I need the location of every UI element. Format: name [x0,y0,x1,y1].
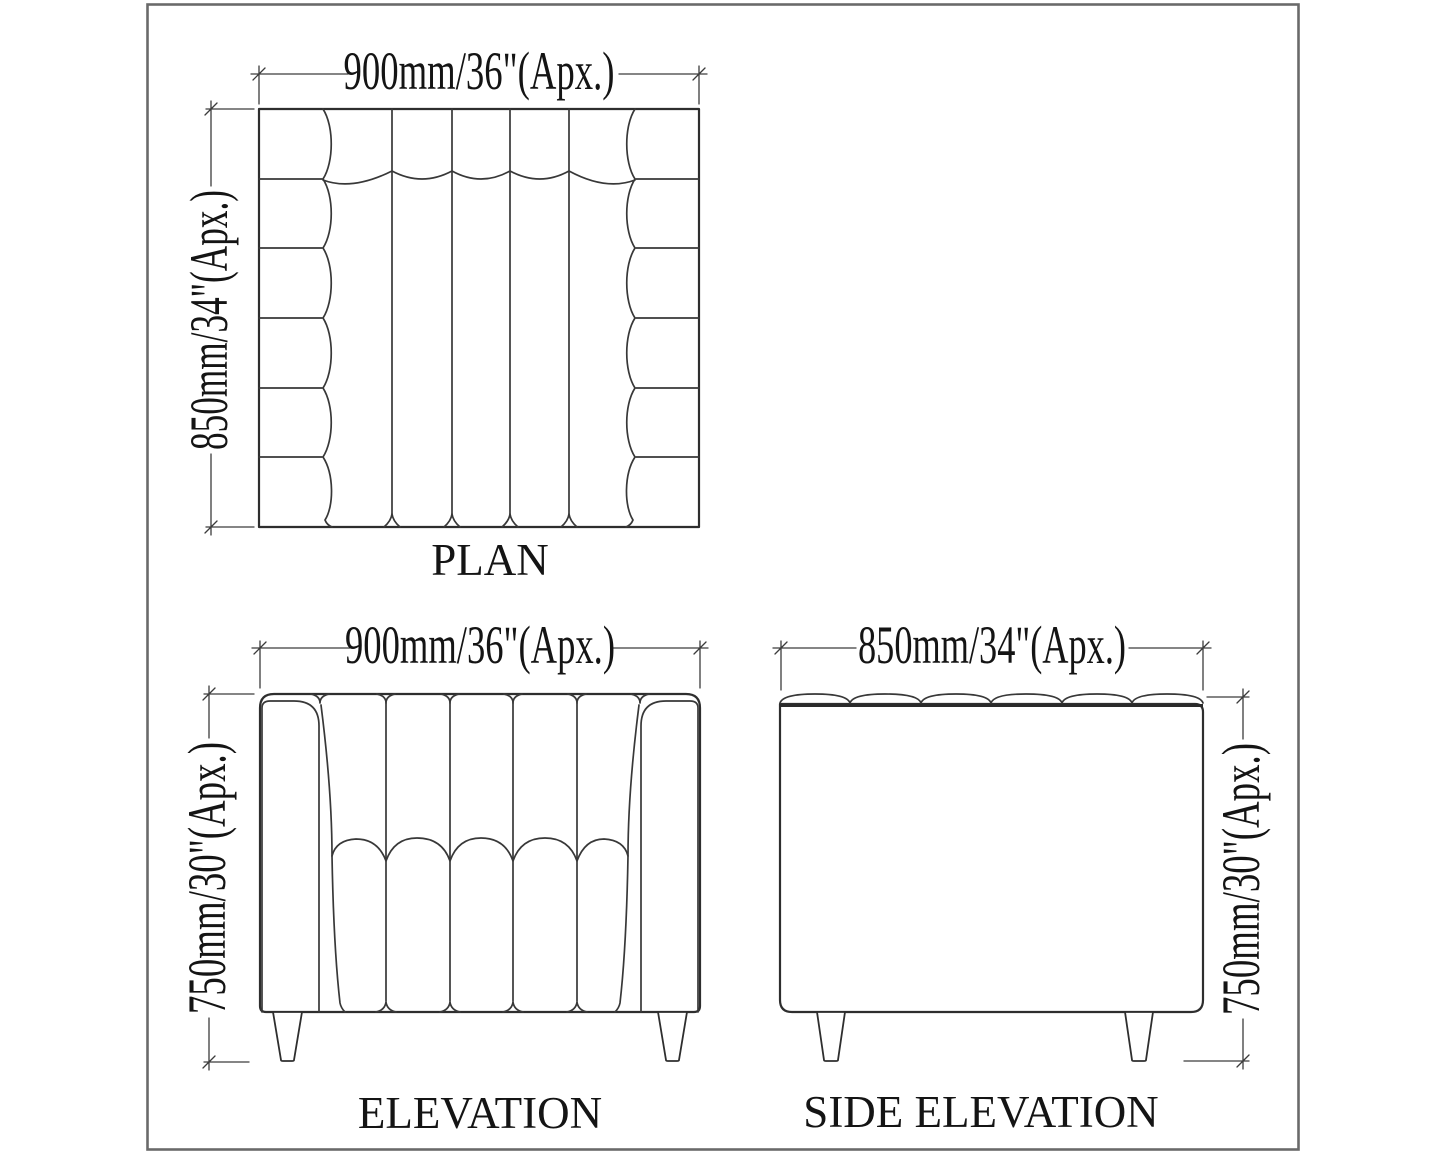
elevation-bottom-notches [376,1002,587,1012]
side-elevation-left-leg [817,1012,845,1061]
side-elevation-view: 850mm/34"(Apx.) 750mm/30"(Apx.) SIDE ELE… [773,615,1271,1137]
plan-outline [259,109,699,527]
sheet-border [148,5,1299,1150]
side-elevation-right-leg [1125,1012,1153,1061]
plan-left-arm-divisions [259,179,322,457]
elevation-view-label: ELEVATION [358,1088,602,1138]
plan-left-arm-wavy-edge [323,109,332,527]
plan-channel-seams [392,109,569,514]
side-elevation-right-dimension-text: 750mm/30"(Apx.) [1211,743,1271,1015]
elevation-channel-seams [386,703,577,1001]
elevation-left-dimension-text: 750mm/30"(Apx.) [177,742,237,1014]
cad-drawing: 900mm/36"(Apx.) 850mm/34"(Apx.) PLAN [0,0,1445,1156]
side-elevation-outline [780,704,1203,1012]
side-elevation-top-scallops [780,694,1203,703]
elevation-right-arm-panel [641,701,698,1012]
elevation-top-dimension-text: 900mm/36"(Apx.) [345,615,615,675]
elevation-view: 900mm/36"(Apx.) 750mm/30"(Apx.) ELEVATIO… [177,615,708,1138]
plan-left-dimension-text: 850mm/34"(Apx.) [179,190,239,450]
plan-view-label: PLAN [431,535,549,585]
elevation-seat-arches [332,838,628,861]
side-elevation-view-label: SIDE ELEVATION [803,1087,1158,1137]
elevation-left-arm-panel [262,701,319,1012]
plan-right-arm-divisions [636,179,699,457]
elevation-left-leg [273,1012,302,1061]
elevation-left-sweep-curve [321,705,345,1012]
plan-view: 900mm/36"(Apx.) 850mm/34"(Apx.) PLAN [179,41,707,585]
elevation-top-notches [311,694,649,703]
plan-top-dimension-text: 900mm/36"(Apx.) [344,41,615,101]
plan-channel-bottom-arcs [384,514,577,527]
side-elevation-top-dimension-text: 850mm/34"(Apx.) [858,615,1126,675]
elevation-right-leg [658,1012,687,1061]
plan-back-scallops [323,171,635,184]
plan-right-arm-wavy-edge [626,109,635,527]
drawing-sheet: 900mm/36"(Apx.) 850mm/34"(Apx.) PLAN [0,0,1445,1156]
elevation-right-sweep-curve [615,705,639,1012]
